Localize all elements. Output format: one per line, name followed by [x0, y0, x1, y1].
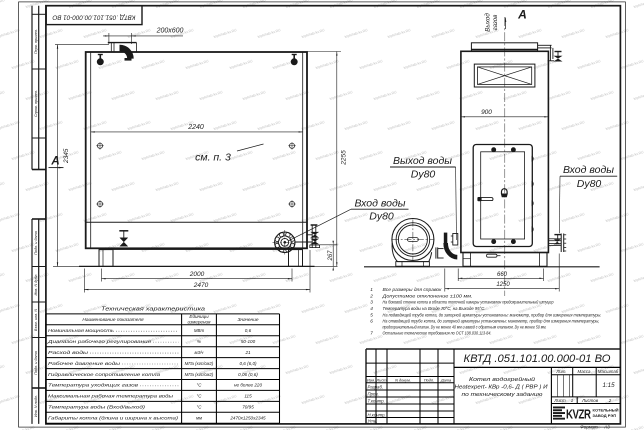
svg-text:21: 21: [244, 350, 251, 355]
svg-text:teplohab-kv.RU: teplohab-kv.RU: [344, 120, 368, 131]
svg-text:teplohab-kv.RU: teplohab-kv.RU: [285, 181, 309, 192]
svg-text:teplohab-kv.RU: teplohab-kv.RU: [229, 150, 253, 161]
svg-text:teplohab-kv.RU: teplohab-kv.RU: [68, 90, 92, 101]
svg-text:Инв. N дубл.: Инв. N дубл.: [34, 274, 38, 296]
svg-text:teplohab-kv.RU: teplohab-kv.RU: [68, 272, 92, 283]
svg-text:°С: °С: [197, 394, 203, 399]
svg-text:Формат: Формат: [580, 425, 598, 430]
svg-text:teplohab-kv.RU: teplohab-kv.RU: [620, 150, 644, 161]
svg-text:На боковой стенке котла в обла: На боковой стенке котла в области топочн…: [383, 299, 554, 305]
svg-text:teplohab-kv.RU: teplohab-kv.RU: [344, 212, 368, 223]
svg-text:7: 7: [370, 331, 373, 336]
svg-text:teplohab-kv.RU: teplohab-kv.RU: [155, 272, 179, 283]
svg-text:газов: газов: [492, 14, 499, 31]
svg-text:teplohab-kv.RU: teplohab-kv.RU: [403, 425, 427, 430]
svg-text:teplohab-kv.RU: teplohab-kv.RU: [577, 334, 601, 345]
svg-text:teplohab-kv.RU: teplohab-kv.RU: [55, 425, 79, 430]
svg-text:предохранительный клапан. Dу н: предохранительный клапан. Dу не менее 40…: [383, 324, 547, 330]
svg-text:teplohab-kv.RU: teplohab-kv.RU: [489, 425, 513, 430]
svg-text:Выход воды: Выход воды: [393, 155, 452, 167]
svg-text:Рабочее давление воды: Рабочее давление воды: [48, 361, 121, 367]
svg-text:Температура уходящих газов: Температура уходящих газов: [48, 383, 139, 389]
svg-text:0,6: 0,6: [245, 328, 252, 333]
svg-text:2000: 2000: [189, 271, 205, 278]
svg-text:teplohab-kv.RU: teplohab-kv.RU: [11, 425, 35, 430]
svg-text:teplohab-kv.RU: teplohab-kv.RU: [301, 28, 325, 39]
svg-text:teplohab-kv.RU: teplohab-kv.RU: [257, 120, 281, 131]
svg-text:teplohab-kv.RU: teplohab-kv.RU: [213, 28, 237, 39]
svg-text:teplohab-kv.RU: teplohab-kv.RU: [55, 59, 79, 70]
svg-text:teplohab-kv.RU: teplohab-kv.RU: [359, 242, 383, 253]
svg-text:teplohab-kv.RU: teplohab-kv.RU: [257, 212, 281, 223]
svg-text:А: А: [517, 8, 527, 22]
svg-text:Расход воды: Расход воды: [48, 350, 89, 356]
svg-text:teplohab-kv.RU: teplohab-kv.RU: [446, 425, 470, 430]
svg-text:teplohab-kv.RU: teplohab-kv.RU: [229, 59, 253, 70]
svg-text:teplohab-kv.RU: teplohab-kv.RU: [633, 0, 644, 9]
svg-text:70/95: 70/95: [242, 405, 254, 410]
svg-text:teplohab-kv.RU: teplohab-kv.RU: [605, 28, 629, 39]
svg-text:teplohab-kv.RU: teplohab-kv.RU: [272, 425, 296, 430]
svg-text:Инв. N подл.: Инв. N подл.: [34, 395, 38, 417]
svg-text:1: 1: [370, 287, 373, 292]
svg-text:teplohab-kv.RU: teplohab-kv.RU: [329, 0, 353, 9]
svg-text:teplohab-kv.RU: teplohab-kv.RU: [127, 28, 151, 39]
svg-text:МВт: МВт: [194, 328, 205, 333]
svg-text:Выход: Выход: [485, 13, 492, 32]
svg-text:Максимальная рабочая температу: Максимальная рабочая температура воды: [48, 394, 173, 400]
svg-text:teplohab-kv.RU: teplohab-kv.RU: [39, 212, 63, 223]
svg-text:teplohab-kv.RU: teplohab-kv.RU: [111, 0, 135, 9]
svg-text:teplohab-kv.RU: teplohab-kv.RU: [620, 425, 644, 430]
svg-text:teplohab-kv.RU: teplohab-kv.RU: [98, 150, 122, 161]
svg-text:teplohab-kv.RU: teplohab-kv.RU: [0, 0, 6, 9]
svg-text:6: 6: [370, 319, 373, 324]
svg-text:teplohab-kv.RU: teplohab-kv.RU: [0, 212, 21, 223]
svg-text:teplohab-kv.RU: teplohab-kv.RU: [315, 59, 339, 70]
svg-text:teplohab-kv.RU: teplohab-kv.RU: [242, 181, 266, 192]
svg-text:А: А: [50, 156, 59, 168]
svg-text:teplohab-kv.RU: teplohab-kv.RU: [83, 212, 107, 223]
svg-text:Справ. примен.: Справ. примен.: [34, 90, 38, 117]
svg-text:267: 267: [328, 250, 334, 262]
svg-text:А3: А3: [603, 425, 610, 430]
svg-text:115: 115: [244, 394, 252, 399]
svg-text:teplohab-kv.RU: teplohab-kv.RU: [0, 120, 21, 131]
svg-text:teplohab-kv.RU: teplohab-kv.RU: [141, 150, 165, 161]
svg-text:Dy80: Dy80: [411, 169, 436, 181]
svg-text:teplohab-kv.RU: teplohab-kv.RU: [416, 0, 440, 9]
svg-text:teplohab-kv.RU: teplohab-kv.RU: [83, 120, 107, 131]
svg-text:Дата: Дата: [440, 378, 452, 383]
svg-text:660: 660: [497, 272, 508, 278]
svg-text:°С: °С: [197, 383, 203, 388]
svg-text:мм: мм: [196, 415, 202, 420]
svg-text:Вход воды: Вход воды: [355, 198, 406, 210]
svg-text:teplohab-kv.RU: teplohab-kv.RU: [199, 90, 223, 101]
svg-text:teplohab-kv.RU: teplohab-kv.RU: [329, 272, 353, 283]
svg-text:см. п. 3: см. п. 3: [195, 152, 231, 164]
svg-text:teplohab-kv.RU: teplohab-kv.RU: [213, 303, 237, 314]
svg-text:teplohab-kv.RU: teplohab-kv.RU: [285, 90, 309, 101]
svg-text:teplohab-kv.RU: teplohab-kv.RU: [242, 90, 266, 101]
svg-text:2470: 2470: [193, 282, 209, 289]
svg-text:teplohab-kv.RU: teplohab-kv.RU: [315, 334, 339, 345]
svg-text:teplohab-kv.RU: teplohab-kv.RU: [518, 120, 542, 131]
svg-text:teplohab-kv.RU: teplohab-kv.RU: [155, 0, 179, 9]
svg-text:Лист: Лист: [553, 398, 566, 403]
svg-text:teplohab-kv.RU: teplohab-kv.RU: [329, 90, 353, 101]
svg-text:teplohab-kv.RU: teplohab-kv.RU: [475, 212, 499, 223]
svg-text:teplohab-kv.RU: teplohab-kv.RU: [68, 181, 92, 192]
svg-text:teplohab-kv.RU: teplohab-kv.RU: [315, 150, 339, 161]
svg-text:teplohab-kv.RU: teplohab-kv.RU: [301, 212, 325, 223]
svg-text:Подп. и дата: Подп. и дата: [34, 231, 38, 255]
svg-text:teplohab-kv.RU: teplohab-kv.RU: [403, 59, 427, 70]
svg-text:teplohab-kv.RU: teplohab-kv.RU: [577, 150, 601, 161]
svg-text:teplohab-kv.RU: teplohab-kv.RU: [620, 242, 644, 253]
svg-text:Перв. примен.: Перв. примен.: [34, 29, 38, 54]
svg-text:teplohab-kv.RU: teplohab-kv.RU: [459, 272, 483, 283]
svg-text:teplohab-kv.RU: teplohab-kv.RU: [213, 212, 237, 223]
svg-text:teplohab-kv.RU: teplohab-kv.RU: [577, 242, 601, 253]
svg-text:Утв.: Утв.: [368, 419, 378, 424]
svg-text:teplohab-kv.RU: teplohab-kv.RU: [590, 0, 614, 9]
svg-text:teplohab-kv.RU: teplohab-kv.RU: [111, 90, 135, 101]
svg-text:2255: 2255: [341, 150, 348, 166]
svg-text:teplohab-kv.RU: teplohab-kv.RU: [387, 28, 411, 39]
svg-text:teplohab-kv.RU: teplohab-kv.RU: [547, 0, 571, 9]
svg-text:КВТД .051.101.00.000-01 ВО: КВТД .051.101.00.000-01 ВО: [53, 14, 136, 21]
svg-text:Разраб.: Разраб.: [368, 385, 384, 390]
svg-text:ЗАВОД РЭП: ЗАВОД РЭП: [593, 413, 617, 418]
svg-text:%: %: [197, 339, 201, 344]
svg-text:teplohab-kv.RU: teplohab-kv.RU: [533, 425, 557, 430]
svg-text:Техническая характеристика: Техническая характеристика: [101, 307, 205, 313]
svg-text:teplohab-kv.RU: teplohab-kv.RU: [431, 28, 455, 39]
svg-text:teplohab-kv.RU: teplohab-kv.RU: [518, 28, 542, 39]
svg-text:teplohab-kv.RU: teplohab-kv.RU: [416, 272, 440, 283]
svg-text:teplohab-kv.RU: teplohab-kv.RU: [272, 150, 296, 161]
svg-text:по техническому заданию: по техническому заданию: [462, 392, 544, 398]
svg-text:teplohab-kv.RU: teplohab-kv.RU: [373, 0, 397, 9]
svg-text:Все размеры для справок: Все размеры для справок: [383, 287, 443, 292]
svg-text:teplohab-kv.RU: teplohab-kv.RU: [199, 181, 223, 192]
svg-text:Изм.: Изм.: [367, 378, 375, 383]
svg-text:teplohab-kv.RU: teplohab-kv.RU: [170, 394, 194, 405]
svg-text:Котел водогрейный: Котел водогрейный: [469, 376, 536, 383]
svg-text:teplohab-kv.RU: teplohab-kv.RU: [39, 28, 63, 39]
svg-text:teplohab-kv.RU: teplohab-kv.RU: [373, 364, 397, 375]
svg-text:teplohab-kv.RU: teplohab-kv.RU: [141, 425, 165, 430]
svg-text:teplohab-kv.RU: teplohab-kv.RU: [359, 59, 383, 70]
svg-text:teplohab-kv.RU: teplohab-kv.RU: [577, 59, 601, 70]
svg-text:2240: 2240: [187, 124, 204, 131]
svg-text:Значение: Значение: [237, 317, 258, 323]
svg-text:teplohab-kv.RU: teplohab-kv.RU: [301, 120, 325, 131]
svg-text:На подводящей трубе котла, до: На подводящей трубе котла, до запорной а…: [383, 311, 602, 317]
svg-text:teplohab-kv.RU: teplohab-kv.RU: [489, 334, 513, 345]
svg-text:teplohab-kv.RU: teplohab-kv.RU: [39, 303, 63, 314]
svg-text:teplohab-kv.RU: teplohab-kv.RU: [561, 120, 585, 131]
svg-text:КВТД .051.101.00.000-01 ВО: КВТД .051.101.00.000-01 ВО: [464, 353, 611, 365]
svg-text:teplohab-kv.RU: teplohab-kv.RU: [285, 364, 309, 375]
svg-text:Допустимое отклонение ±100 мм: Допустимое отклонение ±100 мм.: [381, 293, 472, 298]
svg-text:teplohab-kv.RU: teplohab-kv.RU: [0, 181, 6, 192]
svg-text:teplohab-kv.RU: teplohab-kv.RU: [55, 242, 79, 253]
svg-text:teplohab-kv.RU: teplohab-kv.RU: [344, 28, 368, 39]
svg-text:0,6 (6,0): 0,6 (6,0): [239, 361, 257, 366]
svg-text:teplohab-kv.RU: teplohab-kv.RU: [170, 212, 194, 223]
svg-text:teplohab-kv.RU: teplohab-kv.RU: [431, 120, 455, 131]
svg-text:teplohab-kv.RU: teplohab-kv.RU: [431, 212, 455, 223]
svg-text:Гидравлическое сопротивление к: Гидравлическое сопротивление котла: [48, 372, 160, 378]
svg-text:teplohab-kv.RU: teplohab-kv.RU: [387, 120, 411, 131]
svg-text:teplohab-kv.RU: teplohab-kv.RU: [561, 28, 585, 39]
svg-text:N докум.: N докум.: [395, 378, 411, 383]
svg-text:teplohab-kv.RU: teplohab-kv.RU: [257, 28, 281, 39]
svg-text:5: 5: [370, 312, 373, 317]
svg-text:Т.контр.: Т.контр.: [368, 399, 385, 404]
svg-text:teplohab-kv.RU: teplohab-kv.RU: [0, 303, 21, 314]
svg-text:teplohab-kv.RU: teplohab-kv.RU: [141, 59, 165, 70]
svg-text:teplohab-kv.RU: teplohab-kv.RU: [242, 0, 266, 9]
svg-text:На отводящей трубе котла, до: На отводящей трубе котла, до запорной ар…: [383, 318, 600, 324]
svg-text:Взам. инв. N: Взам. инв. N: [34, 309, 38, 331]
svg-text:Н.контр.: Н.контр.: [368, 412, 386, 417]
svg-text:teplohab-kv.RU: teplohab-kv.RU: [0, 272, 6, 283]
svg-text:Температура воды на Входе 70°: Температура воды на Входе 70°С, на Выход…: [383, 306, 486, 311]
svg-text:teplohab-kv.RU: teplohab-kv.RU: [185, 59, 209, 70]
svg-text:teplohab-kv.RU: teplohab-kv.RU: [416, 90, 440, 101]
svg-text:teplohab-kv.RU: teplohab-kv.RU: [459, 181, 483, 192]
svg-text:измерения: измерения: [188, 319, 212, 324]
svg-text:teplohab-kv.RU: teplohab-kv.RU: [111, 272, 135, 283]
svg-text:teplohab-kv.RU: teplohab-kv.RU: [459, 90, 483, 101]
svg-text:teplohab-kv.RU: teplohab-kv.RU: [503, 364, 527, 375]
svg-text:м3/ч: м3/ч: [195, 350, 205, 355]
svg-text:teplohab-kv.RU: teplohab-kv.RU: [257, 303, 281, 314]
svg-text:КОТЕЛЬНЫЙ: КОТЕЛЬНЫЙ: [593, 408, 619, 413]
svg-text:Масштаб: Масштаб: [598, 369, 619, 374]
svg-text:teplohab-kv.RU: teplohab-kv.RU: [301, 394, 325, 405]
svg-text:teplohab-kv.RU: teplohab-kv.RU: [315, 425, 339, 430]
svg-text:1250: 1250: [496, 282, 510, 288]
svg-text:teplohab-kv.RU: teplohab-kv.RU: [605, 212, 629, 223]
svg-text:teplohab-kv.RU: teplohab-kv.RU: [39, 120, 63, 131]
svg-text:МПа (кгс/см2): МПа (кгс/см2): [185, 361, 214, 366]
svg-text:teplohab-kv.RU: teplohab-kv.RU: [373, 90, 397, 101]
svg-text:Лит.: Лит.: [555, 369, 566, 374]
svg-text:teplohab-kv.RU: teplohab-kv.RU: [155, 90, 179, 101]
svg-text:1:15: 1:15: [602, 382, 615, 389]
svg-text:teplohab-kv.RU: teplohab-kv.RU: [257, 394, 281, 405]
svg-text:teplohab-kv.RU: teplohab-kv.RU: [0, 394, 21, 405]
svg-text:teplohab-kv.RU: teplohab-kv.RU: [127, 212, 151, 223]
svg-text:teplohab-kv.RU: teplohab-kv.RU: [185, 425, 209, 430]
svg-text:teplohab-kv.RU: teplohab-kv.RU: [155, 181, 179, 192]
svg-text:teplohab-kv.RU: teplohab-kv.RU: [0, 90, 6, 101]
svg-text:teplohab-kv.RU: teplohab-kv.RU: [68, 0, 92, 9]
svg-text:teplohab-kv.RU: teplohab-kv.RU: [403, 242, 427, 253]
svg-text:teplohab-kv.RU: teplohab-kv.RU: [359, 150, 383, 161]
svg-text:teplohab-kv.RU: teplohab-kv.RU: [459, 0, 483, 9]
svg-text:3: 3: [370, 300, 373, 305]
svg-text:2345: 2345: [63, 148, 70, 164]
svg-text:Диапазон рабочего регулировани: Диапазон рабочего регулирования: [47, 339, 152, 345]
svg-text:teplohab-kv.RU: teplohab-kv.RU: [373, 181, 397, 192]
svg-text:teplohab-kv.RU: teplohab-kv.RU: [533, 334, 557, 345]
svg-text:Dy80: Dy80: [577, 178, 602, 190]
svg-text:teplohab-kv.RU: teplohab-kv.RU: [459, 364, 483, 375]
svg-text:teplohab-kv.RU: teplohab-kv.RU: [329, 181, 353, 192]
svg-text:2470х1250х2345: 2470х1250х2345: [229, 415, 266, 420]
svg-text:teplohab-kv.RU: teplohab-kv.RU: [633, 272, 644, 283]
svg-text:teplohab-kv.RU: teplohab-kv.RU: [242, 272, 266, 283]
svg-text:teplohab-kv.RU: teplohab-kv.RU: [416, 181, 440, 192]
svg-text:teplohab-kv.RU: teplohab-kv.RU: [503, 90, 527, 101]
svg-text:teplohab-kv.RU: teplohab-kv.RU: [301, 303, 325, 314]
svg-text:teplohab-kv.RU: teplohab-kv.RU: [633, 181, 644, 192]
svg-text:teplohab-kv.RU: teplohab-kv.RU: [633, 90, 644, 101]
svg-text:teplohab-kv.RU: teplohab-kv.RU: [633, 364, 644, 375]
svg-text:teplohab-kv.RU: teplohab-kv.RU: [446, 59, 470, 70]
svg-text:Подп.: Подп.: [424, 378, 434, 383]
svg-text:teplohab-kv.RU: teplohab-kv.RU: [547, 181, 571, 192]
svg-text:teplohab-kv.RU: teplohab-kv.RU: [213, 120, 237, 131]
svg-text:teplohab-kv.RU: teplohab-kv.RU: [620, 334, 644, 345]
svg-text:teplohab-kv.RU: teplohab-kv.RU: [387, 394, 411, 405]
svg-text:teplohab-kv.RU: teplohab-kv.RU: [344, 394, 368, 405]
svg-text:50-100: 50-100: [241, 339, 256, 344]
svg-text:0,06 (0,6): 0,06 (0,6): [238, 372, 258, 377]
svg-text:Листов: Листов: [581, 398, 599, 403]
svg-text:teplohab-kv.RU: teplohab-kv.RU: [547, 90, 571, 101]
svg-text:900: 900: [481, 109, 492, 116]
svg-text:Масса: Масса: [578, 369, 592, 374]
svg-text:2: 2: [608, 398, 612, 403]
svg-text:teplohab-kv.RU: teplohab-kv.RU: [373, 272, 397, 283]
svg-text:Подп. и дата: Подп. и дата: [34, 351, 38, 375]
svg-text:KVZR: KVZR: [566, 407, 591, 421]
svg-text:teplohab-kv.RU: teplohab-kv.RU: [229, 425, 253, 430]
svg-text:не более 220: не более 220: [234, 383, 262, 388]
svg-text:teplohab-kv.RU: teplohab-kv.RU: [431, 394, 455, 405]
svg-text:Габариты котла (длина и ширина: Габариты котла (длина и ширина х высота): [48, 415, 178, 421]
svg-text:teplohab-kv.RU: teplohab-kv.RU: [98, 425, 122, 430]
svg-text:teplohab-kv.RU: teplohab-kv.RU: [111, 181, 135, 192]
svg-text:teplohab-kv.RU: teplohab-kv.RU: [590, 90, 614, 101]
svg-text:teplohab-kv.RU: teplohab-kv.RU: [533, 150, 557, 161]
svg-text:teplohab-kv.RU: teplohab-kv.RU: [344, 303, 368, 314]
svg-text:Heatexpert- КВр -0,6- Д ( РВР: Heatexpert- КВр -0,6- Д ( РВР ) И: [455, 385, 549, 391]
svg-text:Dy80: Dy80: [369, 211, 394, 223]
svg-text:Наименование показателя: Наименование показателя: [82, 317, 144, 323]
svg-text:Температура воды (Вход/выход): Температура воды (Вход/выход): [48, 405, 145, 411]
svg-text:2: 2: [369, 293, 373, 298]
svg-text:teplohab-kv.RU: teplohab-kv.RU: [518, 212, 542, 223]
svg-text:teplohab-kv.RU: teplohab-kv.RU: [285, 272, 309, 283]
svg-text:Пров.: Пров.: [368, 392, 379, 397]
svg-text:teplohab-kv.RU: teplohab-kv.RU: [620, 59, 644, 70]
svg-text:teplohab-kv.RU: teplohab-kv.RU: [199, 0, 223, 9]
svg-text:teplohab-kv.RU: teplohab-kv.RU: [0, 28, 21, 39]
svg-text:teplohab-kv.RU: teplohab-kv.RU: [359, 425, 383, 430]
svg-text:teplohab-kv.RU: teplohab-kv.RU: [83, 28, 107, 39]
svg-text:teplohab-kv.RU: teplohab-kv.RU: [475, 120, 499, 131]
svg-text:teplohab-kv.RU: teplohab-kv.RU: [561, 212, 585, 223]
svg-text:teplohab-kv.RU: teplohab-kv.RU: [285, 0, 309, 9]
svg-text:МПа (кгс/см2): МПа (кгс/см2): [185, 372, 214, 377]
svg-text:200х600: 200х600: [156, 28, 184, 35]
svg-text:°С: °С: [197, 405, 203, 410]
svg-text:Остальные технические требован: Остальные технические требования по ОСТ …: [383, 331, 492, 336]
svg-text:teplohab-kv.RU: teplohab-kv.RU: [590, 272, 614, 283]
svg-text:teplohab-kv.RU: teplohab-kv.RU: [0, 364, 6, 375]
svg-text:teplohab-kv.RU: teplohab-kv.RU: [329, 364, 353, 375]
svg-text:Вход воды: Вход воды: [563, 164, 614, 176]
svg-text:teplohab-kv.RU: teplohab-kv.RU: [127, 120, 151, 131]
svg-text:Номинальная мощность: Номинальная мощность: [48, 328, 114, 334]
svg-text:Лист: Лист: [375, 378, 387, 383]
svg-text:teplohab-kv.RU: teplohab-kv.RU: [605, 303, 629, 314]
svg-text:4: 4: [370, 306, 373, 311]
svg-text:teplohab-kv.RU: teplohab-kv.RU: [605, 120, 629, 131]
